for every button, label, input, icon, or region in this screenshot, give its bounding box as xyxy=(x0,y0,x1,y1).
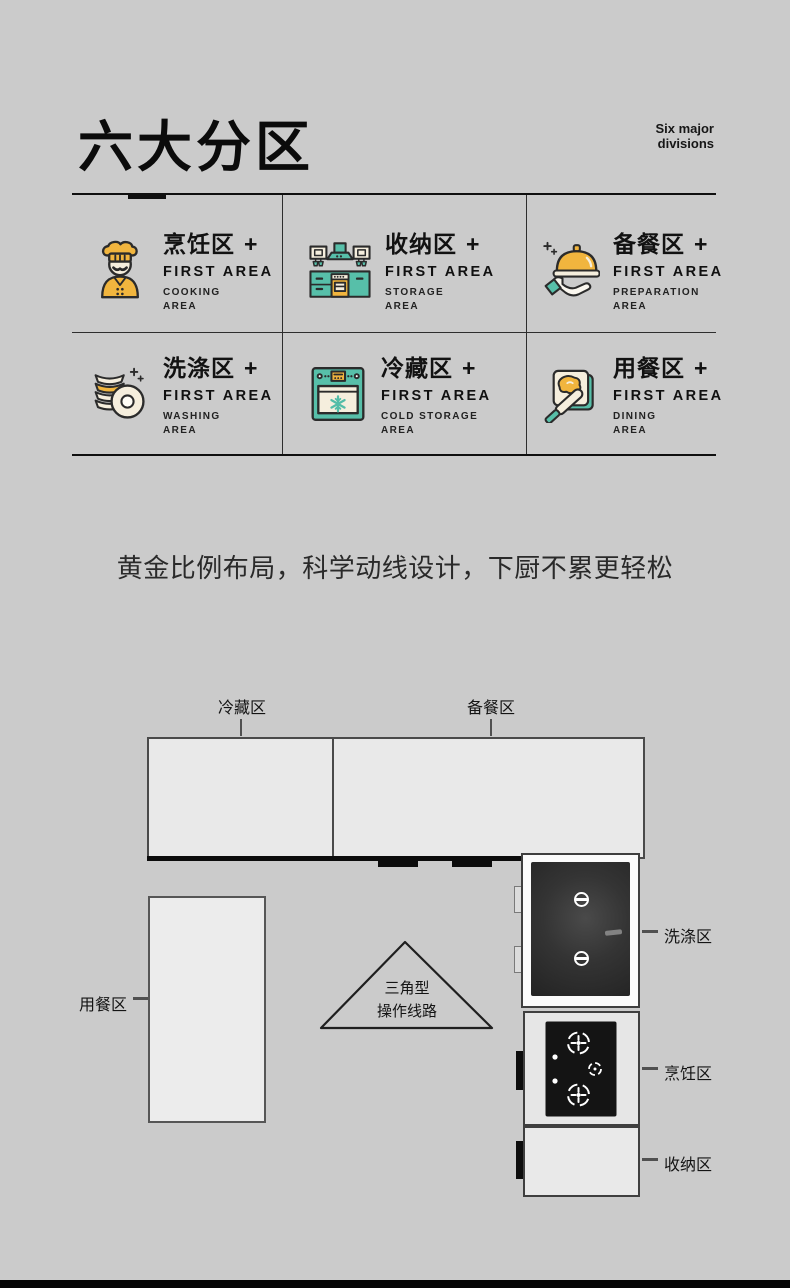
unit-handle xyxy=(516,1051,523,1090)
zone-text-storage: 收纳区+ FIRST AREA STORAGEAREA xyxy=(385,225,495,315)
stove-cooktop xyxy=(545,1021,617,1117)
plus-mark: + xyxy=(462,355,476,381)
connector-line xyxy=(240,719,242,736)
plan-label-prep-area: 备餐区 xyxy=(467,694,515,718)
connector-dash xyxy=(133,997,148,1000)
kitchen-zones-poster: 六大分区 Six major divisions xyxy=(0,0,790,1288)
subtitle-line2: divisions xyxy=(655,136,714,151)
kitchen-cabinet-icon xyxy=(308,240,372,300)
plus-mark: + xyxy=(466,231,480,257)
dish-stack-icon xyxy=(90,364,150,424)
zone-first-area-label: FIRST AREA xyxy=(385,264,495,280)
zone-cell-cold-storage: 冷藏区+ FIRST AREA COLD STORAGEAREA xyxy=(283,333,527,454)
zone-sub-label: COLD STORAGEAREA xyxy=(381,410,491,439)
plus-mark: + xyxy=(244,355,258,381)
cabinet-handle xyxy=(452,861,492,867)
zone-first-area-label: FIRST AREA xyxy=(613,264,723,280)
sink-basin xyxy=(531,862,630,996)
plus-mark: + xyxy=(694,231,708,257)
stove-knob xyxy=(552,1054,557,1059)
sink-drain xyxy=(574,892,589,907)
subtitle-line1: Six major xyxy=(655,121,714,136)
sink-drain xyxy=(574,951,589,966)
zone-cell-preparation: 备餐区+ FIRST AREA PREPARATIONAREA xyxy=(527,195,716,333)
plus-mark: + xyxy=(244,231,258,257)
zone-name-cn: 烹饪区+ xyxy=(163,225,273,259)
chef-icon xyxy=(90,240,150,300)
cabinet-divider xyxy=(332,739,334,857)
faucet-mark xyxy=(605,929,622,936)
work-triangle-label: 三角型 操作线路 xyxy=(337,977,477,1024)
plan-label-washing-area: 洗涤区 xyxy=(664,923,712,947)
page-subtitle-en: Six major divisions xyxy=(655,121,714,152)
zone-first-area-label: FIRST AREA xyxy=(163,388,273,404)
cloche-hand-icon xyxy=(540,239,600,301)
upper-cabinets xyxy=(147,737,645,859)
zone-name-cn: 冷藏区+ xyxy=(381,349,491,383)
storage-unit xyxy=(523,1126,640,1197)
plan-label-cooking-area: 烹饪区 xyxy=(664,1060,712,1084)
zone-name-cn: 备餐区+ xyxy=(613,225,723,259)
bottom-black-bar xyxy=(0,1280,790,1288)
zone-sub-label: PREPARATIONAREA xyxy=(613,286,723,315)
plan-label-storage-area: 收纳区 xyxy=(664,1151,712,1175)
zone-name-cn: 洗涤区+ xyxy=(163,349,273,383)
zone-sub-label: WASHINGAREA xyxy=(163,410,273,439)
zone-text-cooking: 烹饪区+ FIRST AREA COOKINGAREA xyxy=(163,225,273,315)
stove-knob xyxy=(552,1078,557,1083)
zones-grid: 烹饪区+ FIRST AREA COOKINGAREA xyxy=(72,193,716,456)
page-title: 六大分区 xyxy=(78,102,314,182)
zone-first-area-label: FIRST AREA xyxy=(381,388,491,404)
zone-first-area-label: FIRST AREA xyxy=(613,388,723,404)
toast-knife-icon xyxy=(540,365,600,423)
zone-cell-dining: 用餐区+ FIRST AREA DININGAREA xyxy=(527,333,716,454)
zone-sub-label: DININGAREA xyxy=(613,410,723,439)
unit-handle xyxy=(516,1141,523,1179)
slogan-text: 黄金比例布局，科学动线设计，下厨不累更轻松 xyxy=(0,548,790,585)
zone-text-dining: 用餐区+ FIRST AREA DININGAREA xyxy=(613,349,723,439)
zone-name-cn: 用餐区+ xyxy=(613,349,723,383)
plus-mark: + xyxy=(694,355,708,381)
dining-table xyxy=(148,896,266,1123)
zone-cell-storage: 收纳区+ FIRST AREA STORAGEAREA xyxy=(283,195,527,333)
connector-dash xyxy=(642,1158,658,1161)
zone-cell-cooking: 烹饪区+ FIRST AREA COOKINGAREA xyxy=(72,195,283,333)
plan-label-fridge-area: 冷藏区 xyxy=(218,694,266,718)
zone-sub-label: STORAGEAREA xyxy=(385,286,495,315)
plan-label-dining-area: 用餐区 xyxy=(79,991,127,1015)
zone-sub-label: COOKINGAREA xyxy=(163,286,273,315)
zone-name-cn: 收纳区+ xyxy=(385,225,495,259)
connector-dash xyxy=(642,1067,658,1070)
zone-text-preparation: 备餐区+ FIRST AREA PREPARATIONAREA xyxy=(613,225,723,315)
zone-text-cold-storage: 冷藏区+ FIRST AREA COLD STORAGEAREA xyxy=(381,349,491,439)
fridge-icon xyxy=(308,364,368,424)
sink-unit xyxy=(521,853,640,1008)
connector-dash xyxy=(642,930,658,933)
connector-line xyxy=(490,719,492,736)
cabinet-handle xyxy=(378,861,418,867)
zone-cell-washing: 洗涤区+ FIRST AREA WASHINGAREA xyxy=(72,333,283,454)
zone-first-area-label: FIRST AREA xyxy=(163,264,273,280)
zone-text-washing: 洗涤区+ FIRST AREA WASHINGAREA xyxy=(163,349,273,439)
